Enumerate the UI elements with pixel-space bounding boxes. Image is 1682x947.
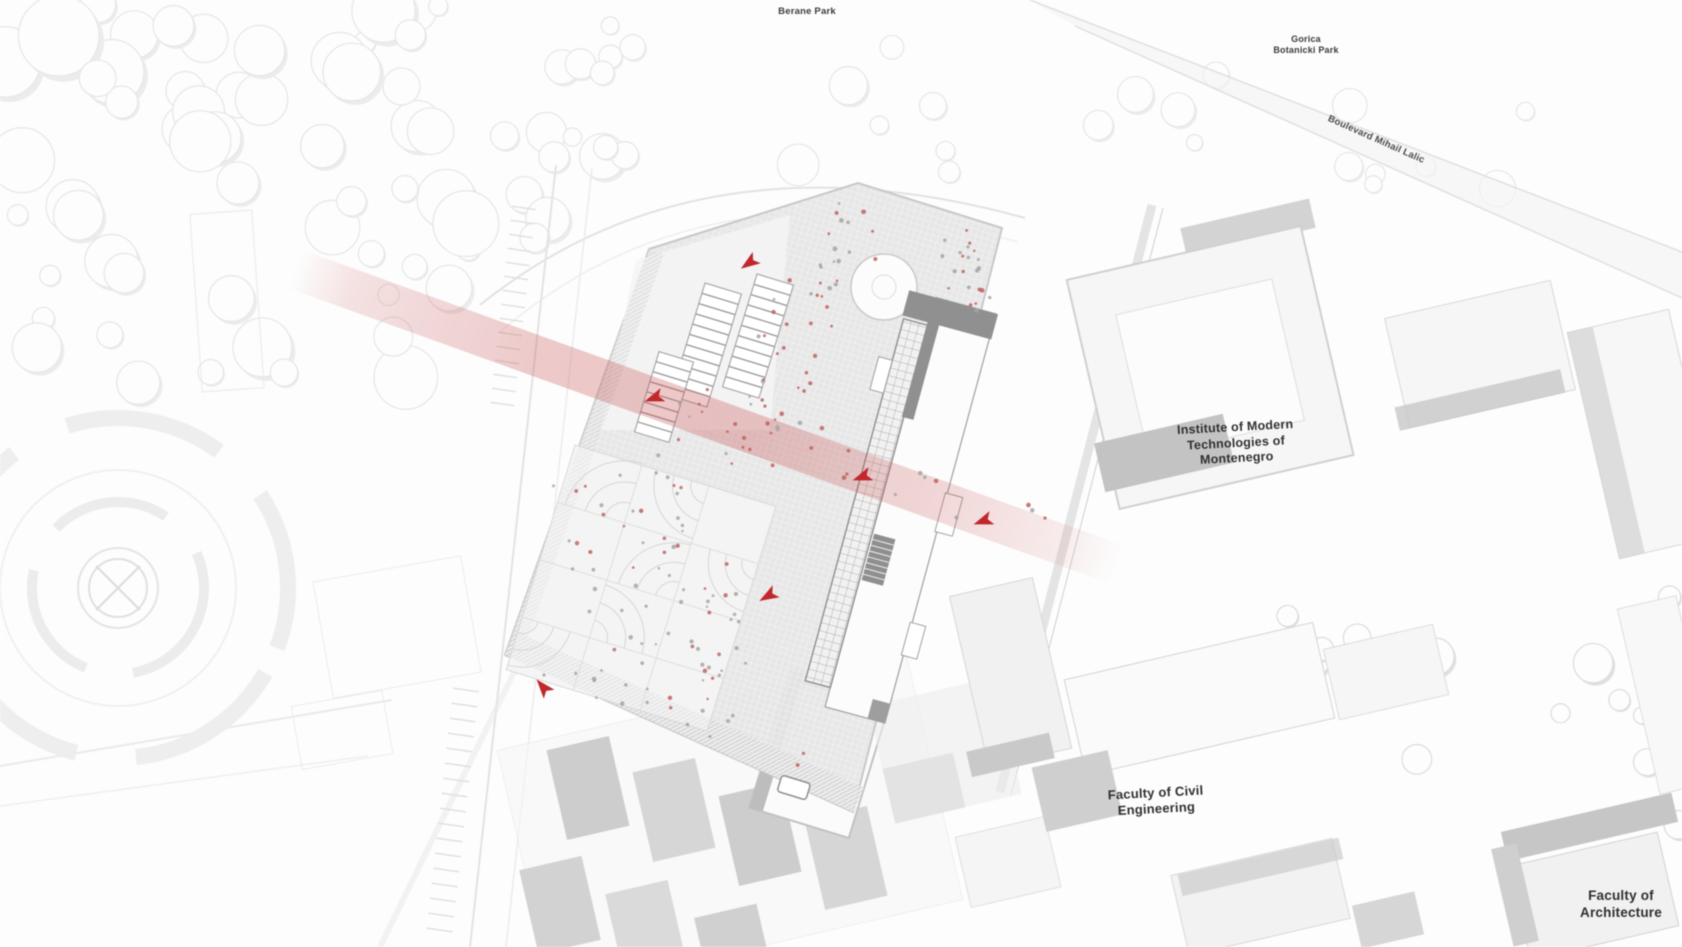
faculty-architecture-label: Faculty of Architecture [1545,888,1682,922]
park-label-berane: Berane Park [762,6,852,18]
park-label-line2: Botanicki Park [1258,45,1354,56]
faculty-architecture-label-line2: Architecture [1545,905,1682,922]
institute-label: Institute of Modern Technologies of Mont… [1149,416,1323,472]
faculty-architecture-building [1491,793,1679,947]
park-label-line1: Gorica [1258,34,1354,45]
boulevard-surface [1030,0,1682,298]
site-plan: Berane Park Gorica Botanicki Park Boulev… [0,0,1682,947]
site-plan-drawing [0,0,1682,947]
roundabout-plaza [0,356,350,820]
park-label-gorica: Gorica Botanicki Park [1258,34,1354,57]
faculty-architecture-label-line1: Faculty of [1545,888,1682,905]
